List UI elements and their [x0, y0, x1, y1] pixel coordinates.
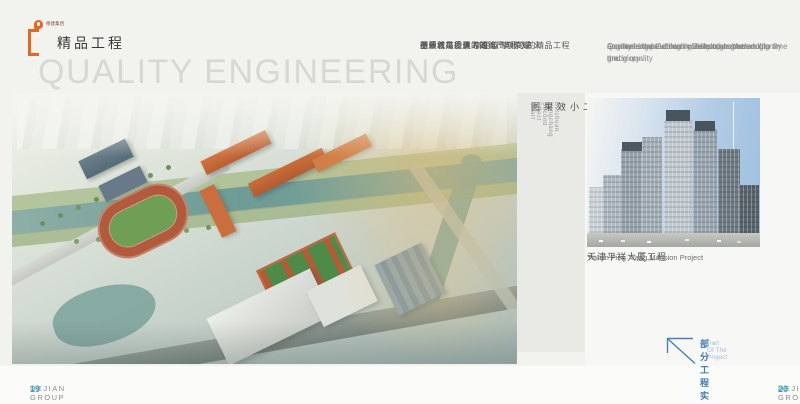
page-number-right: 20 [778, 384, 788, 394]
tower-building [739, 185, 759, 233]
footer-band [0, 366, 800, 404]
tower-building [603, 175, 621, 233]
tower-building [718, 149, 740, 233]
intro-en-line: engineering leads a city development tre… [607, 41, 760, 53]
tower-building [693, 129, 717, 233]
tower-roof-frame [622, 142, 642, 151]
tower-building [664, 119, 692, 233]
tower-building [621, 149, 643, 233]
right-figure-caption-en: Tianjin Ping Xiang Mansion Project [587, 253, 703, 262]
bottom-shading [12, 321, 517, 364]
brochure-spread: 德建集团 精品工程 QUALITY ENGINEERING 品质就是德建人的尊严… [0, 0, 800, 404]
street [587, 233, 760, 247]
trees [74, 239, 79, 244]
brand-name-left: DEJIAN GROUP [30, 384, 66, 402]
trees [40, 221, 45, 226]
intro-cn-line: 引领城市发展的潮流 [420, 41, 497, 52]
top-haze [12, 93, 517, 157]
corner-arrow-icon [666, 337, 697, 365]
section-title: 精品工程 [57, 33, 125, 53]
tower-building [642, 137, 662, 233]
tower-project-photo [587, 98, 760, 247]
dejian-logo-icon [34, 20, 43, 29]
orange-bracket-decoration [28, 29, 39, 56]
project-note-en: Part Of The Project [707, 340, 727, 361]
tower-roof-frame [695, 121, 715, 131]
logo-text: 德建集团 [46, 20, 64, 26]
cars [599, 240, 603, 242]
watermark-title: QUALITY ENGINEERING [38, 53, 459, 92]
tower-roof-frame [666, 110, 690, 121]
aerial-campus-rendering [12, 93, 517, 364]
